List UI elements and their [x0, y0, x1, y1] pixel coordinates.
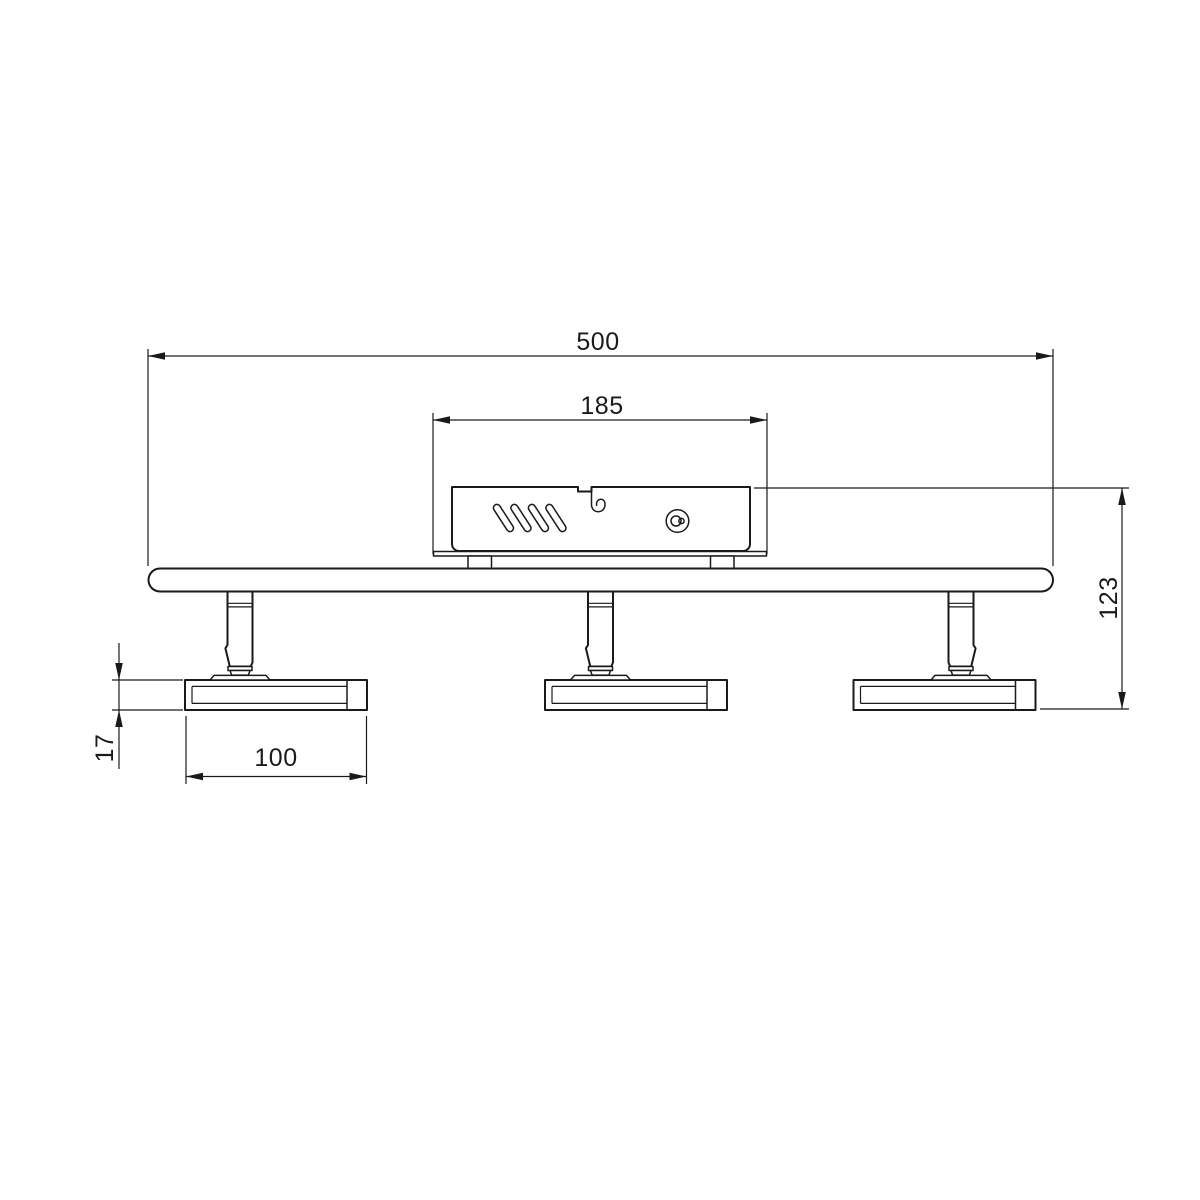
spotlight-head-2	[545, 680, 727, 710]
driver-foot-right	[711, 556, 735, 569]
arrowhead-right	[350, 773, 367, 781]
dim-label-overall-height: 123	[1095, 576, 1123, 619]
technical-drawing: 500 185	[0, 0, 1200, 1200]
dim-label-head-thickness: 17	[91, 734, 119, 763]
arrowhead-right	[1036, 352, 1053, 360]
arrowhead-top	[1118, 488, 1126, 505]
track-bar	[149, 569, 1054, 592]
spotlight-stem-1	[210, 592, 270, 681]
arrowhead-bottom	[115, 710, 123, 727]
arrowhead-left	[186, 773, 203, 781]
spotlight-stem-3	[931, 592, 991, 681]
dim-head-thickness: 17	[91, 643, 183, 769]
dim-label-canopy-width: 185	[580, 392, 623, 420]
dim-label-overall-width: 500	[576, 328, 619, 356]
arrowhead-top	[115, 663, 123, 680]
driver-box	[434, 487, 767, 569]
spotlight-head-3	[854, 680, 1036, 710]
dim-label-head-width: 100	[254, 744, 297, 772]
spotlight-fixture-dimension-drawing: 500 185	[0, 0, 1200, 1200]
driver-foot-left	[468, 556, 492, 569]
arrowhead-left	[148, 352, 165, 360]
spotlight-head-1	[185, 680, 367, 710]
dim-head-width: 100	[186, 716, 367, 784]
spotlight-stem-2	[571, 592, 631, 681]
arrowhead-right	[750, 416, 767, 424]
arrowhead-bottom	[1118, 692, 1126, 709]
driver-box-outline	[452, 487, 750, 551]
arrowhead-left	[433, 416, 450, 424]
